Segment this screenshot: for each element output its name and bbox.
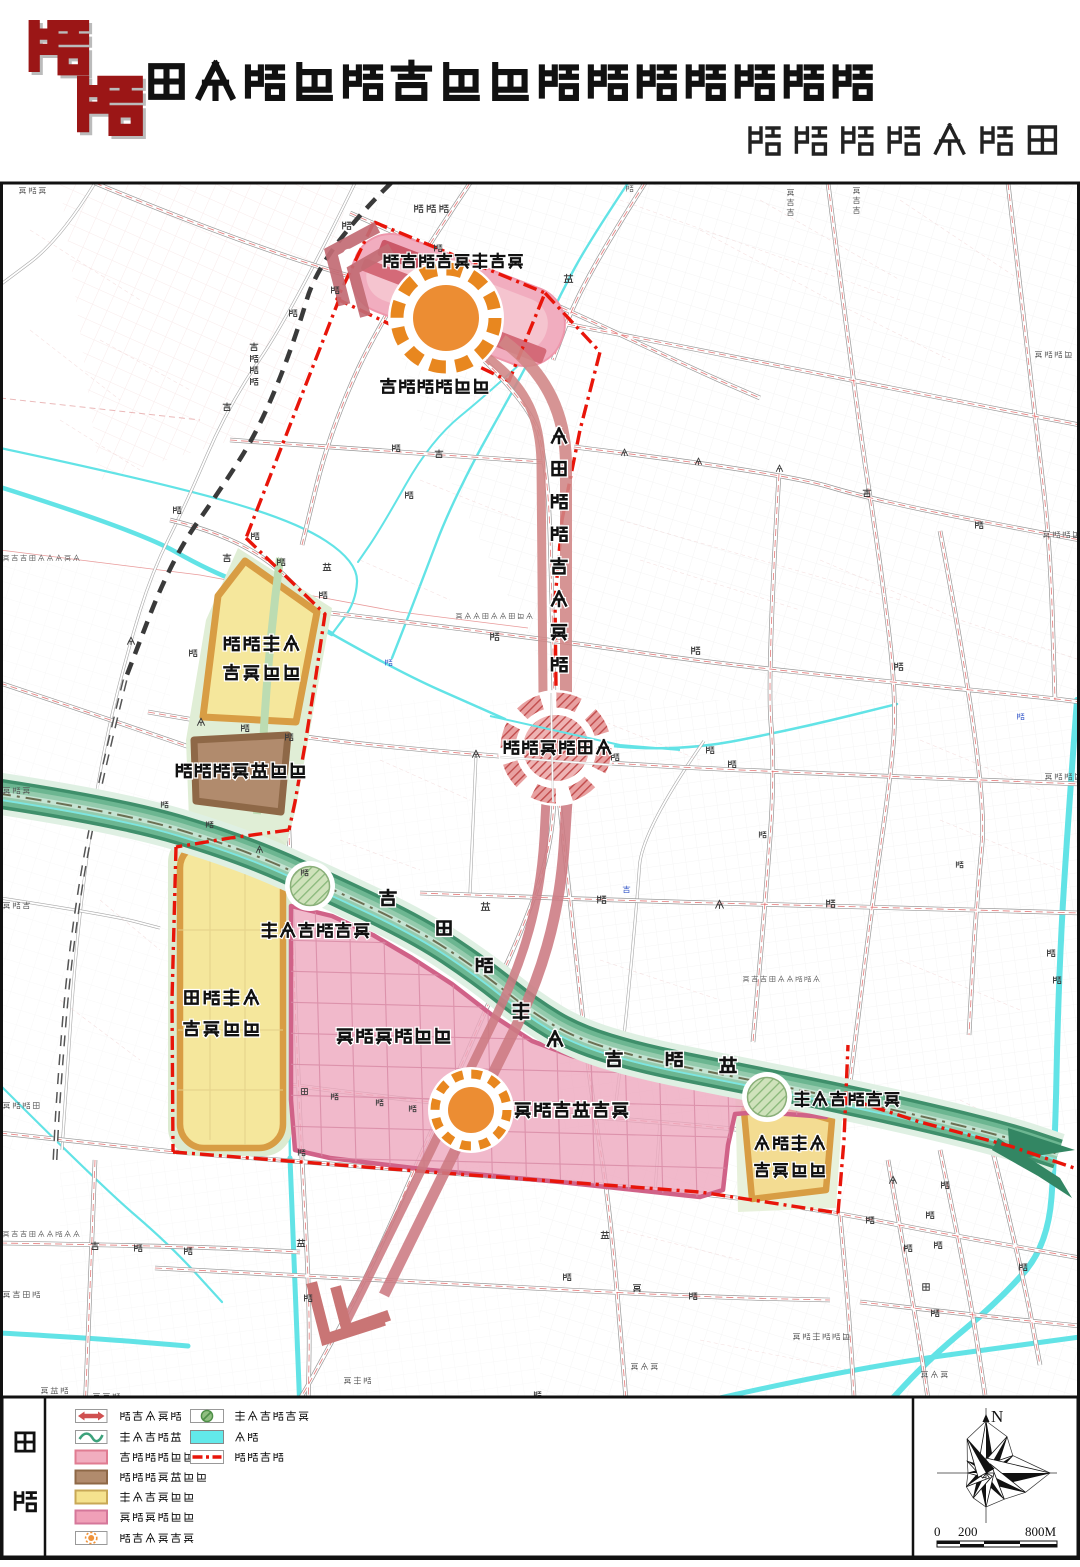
svg-text:0: 0 [934,1524,941,1539]
svg-text:800M: 800M [1025,1524,1057,1539]
svg-text:N: N [991,1407,1003,1426]
svg-text:200: 200 [958,1524,978,1539]
